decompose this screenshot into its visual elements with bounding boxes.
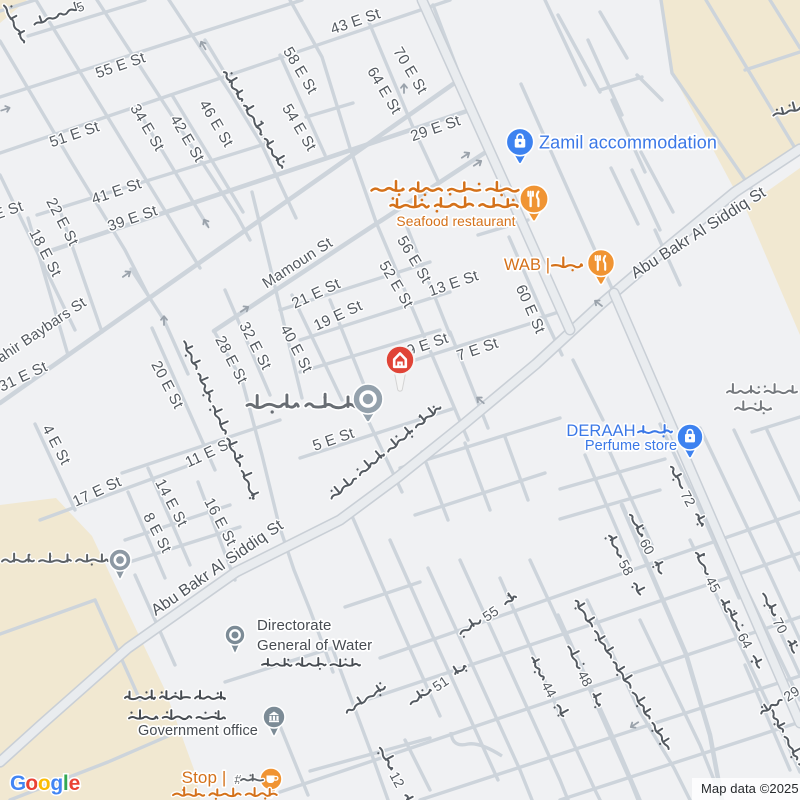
svg-text:o: o [38, 772, 51, 795]
svg-text:Seafood restaurant: Seafood restaurant [396, 214, 515, 229]
svg-text:Map data ©2025: Map data ©2025 [701, 781, 799, 796]
svg-text:o: o [25, 772, 38, 795]
svg-text:e: e [69, 772, 81, 795]
svg-text:WAB |: WAB | [504, 256, 550, 274]
svg-text:G: G [10, 772, 26, 795]
svg-text:Zamil accommodation: Zamil accommodation [539, 133, 717, 153]
svg-text:General of Water: General of Water [257, 637, 372, 654]
svg-text:Directorate: Directorate [257, 617, 331, 634]
svg-text:g: g [50, 772, 63, 795]
svg-text:Government office: Government office [138, 723, 258, 739]
svg-text:Perfume store: Perfume store [585, 438, 677, 454]
svg-text:Stop |: Stop | [182, 768, 227, 787]
